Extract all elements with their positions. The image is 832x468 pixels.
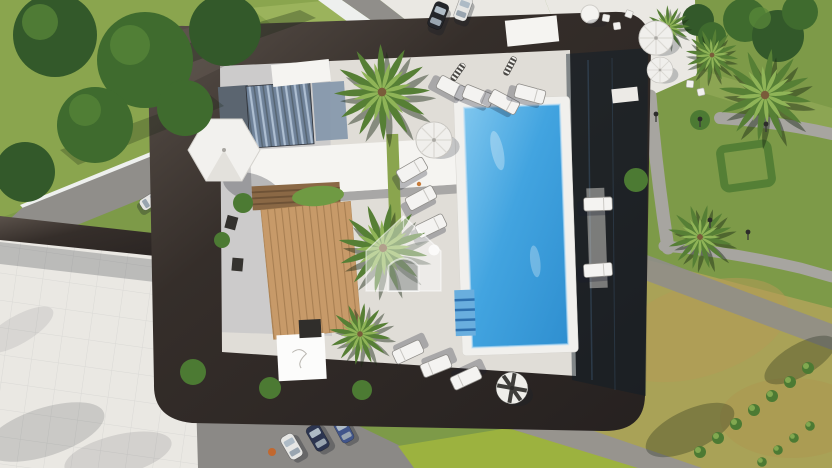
shrub: [730, 418, 742, 430]
aerial-render: Top-down aerial 3D rendering of a modern…: [0, 0, 832, 468]
shrub: [748, 404, 760, 416]
wood-deck: [261, 201, 362, 340]
white-canopy: [505, 15, 559, 46]
shrub: [712, 432, 724, 444]
shrub: [805, 421, 815, 431]
planter-green: [352, 380, 372, 400]
scene-svg: [0, 0, 832, 468]
planter-green: [214, 232, 230, 248]
shrub: [773, 445, 783, 455]
watermark-dot: [429, 245, 440, 256]
planter-green: [180, 359, 206, 385]
terrace-chair: [602, 14, 610, 22]
house-logo-arch: [389, 259, 419, 292]
tree: [157, 80, 213, 136]
glass-panel: [312, 81, 348, 141]
shrub: [766, 390, 778, 402]
terrace-chair: [613, 22, 621, 30]
shrub: [757, 457, 767, 467]
tree-highlight: [749, 7, 771, 29]
hedge: [624, 168, 648, 192]
planter-orange: [268, 448, 276, 456]
towel-orange: [417, 182, 421, 186]
grill: [299, 319, 322, 338]
terrace-chair: [686, 80, 694, 88]
dining-table: [276, 333, 326, 381]
pool-area: [448, 96, 579, 356]
tree-highlight: [110, 25, 150, 65]
tree-highlight: [69, 94, 101, 126]
shrub: [784, 376, 796, 388]
umbrella-pole: [222, 148, 226, 152]
chair-dark: [231, 258, 243, 272]
shrub: [802, 362, 814, 374]
terrace-chair: [697, 88, 705, 96]
shrub: [694, 446, 706, 458]
tree-highlight: [22, 4, 58, 40]
pool-steps: [454, 289, 476, 336]
planter-green: [259, 377, 281, 399]
swimming-pool: [464, 104, 568, 347]
glass-louvre-roof: [246, 82, 314, 148]
white-canopy: [611, 87, 638, 104]
planter-green: [233, 193, 253, 213]
shrub: [789, 433, 799, 443]
